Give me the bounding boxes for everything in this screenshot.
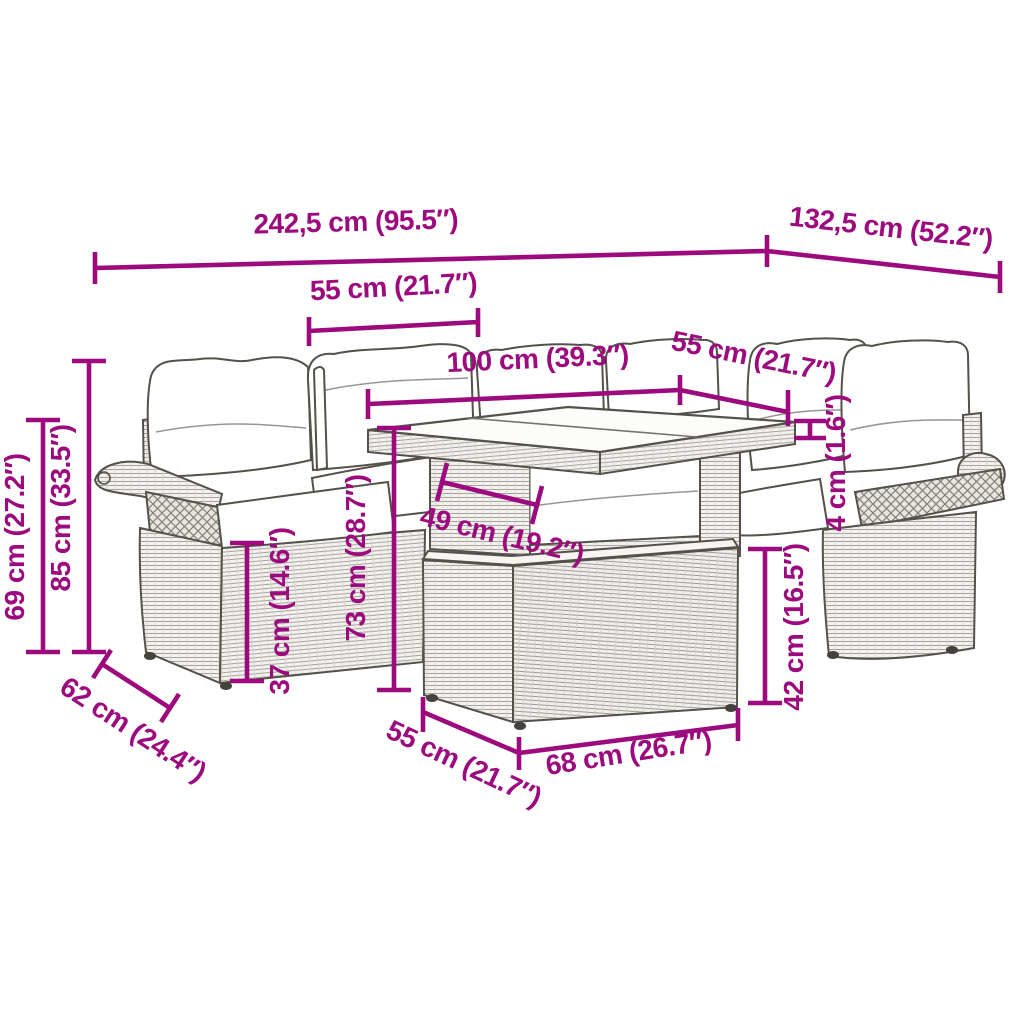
dim-back-height: 85 cm (33.5″) xyxy=(45,361,106,652)
dim-tabletop-thickness-label: 4 cm (1.6″) xyxy=(820,394,851,531)
back-pillow-1 xyxy=(148,357,311,477)
dim-total-depth: 132,5 cm (52.2″) xyxy=(767,201,1000,293)
dim-armrest-height-label: 69 cm (27.2″) xyxy=(0,453,30,620)
foot xyxy=(144,652,156,660)
dim-ottoman-width-label: 68 cm (26.7″) xyxy=(544,724,714,781)
dim-left-seat-width-label: 55 cm (21.7″) xyxy=(309,267,478,307)
foot xyxy=(514,722,526,730)
dim-seat-depth-label: 62 cm (24.4″) xyxy=(55,670,212,787)
ottoman-front-face xyxy=(513,548,738,722)
dim-seat-height-label: 37 cm (14.6″) xyxy=(264,527,295,694)
back-pillow-6 xyxy=(841,340,970,472)
foot xyxy=(946,646,958,654)
right-seat-base xyxy=(823,512,976,659)
dim-ottoman-height: 42 cm (16.5″) xyxy=(748,543,809,710)
dim-total-width-label: 242,5 cm (95.5″) xyxy=(253,203,458,239)
dim-left-seat-width: 55 cm (21.7″) xyxy=(309,267,478,346)
foot xyxy=(426,694,438,702)
dim-table-height-label: 73 cm (28.7″) xyxy=(340,474,371,641)
foot xyxy=(725,704,737,712)
dim-total-depth-label: 132,5 cm (52.2″) xyxy=(788,201,995,255)
diagram-canvas: 242,5 cm (95.5″) 132,5 cm (52.2″) 55 cm … xyxy=(0,0,1024,1024)
pillow-corner-flap xyxy=(314,367,327,470)
dim-ottoman-height-label: 42 cm (16.5″) xyxy=(778,543,809,710)
dimension-diagram: 242,5 cm (95.5″) 132,5 cm (52.2″) 55 cm … xyxy=(0,0,1024,1024)
foot xyxy=(827,651,839,659)
dim-back-height-label: 85 cm (33.5″) xyxy=(45,424,76,591)
